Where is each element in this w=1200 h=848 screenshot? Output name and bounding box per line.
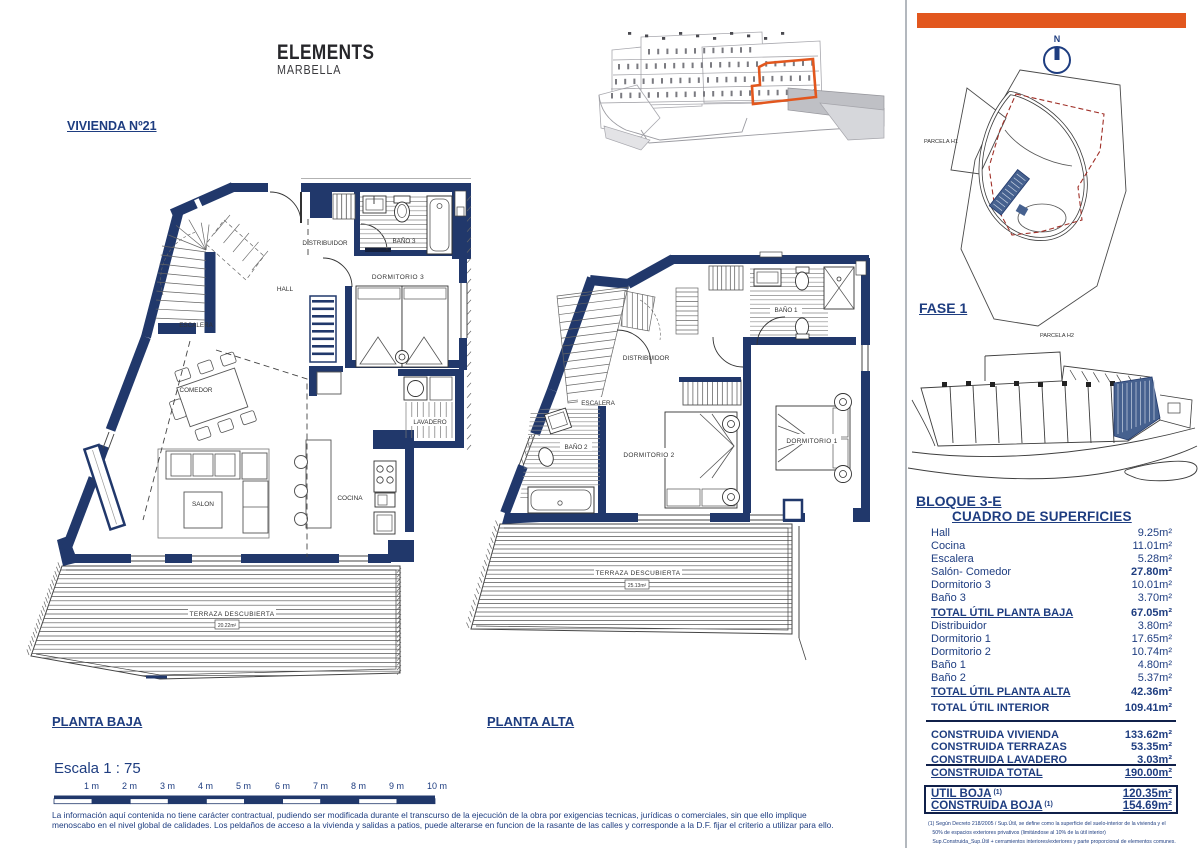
svg-text:BAÑO 1: BAÑO 1 [774,305,798,314]
svg-text:25.13m²: 25.13m² [628,583,647,589]
svg-text:BAÑO 3: BAÑO 3 [392,236,416,245]
svg-text:N: N [1054,34,1061,44]
svg-text:20.22m²: 20.22m² [218,623,237,629]
svg-text:TERRAZA DESCUBIERTA: TERRAZA DESCUBIERTA [595,570,680,577]
svg-text:ESCALERA: ESCALERA [581,400,615,407]
svg-text:ESCALERA: ESCALERA [179,322,213,329]
svg-text:BAÑO 2: BAÑO 2 [564,442,588,451]
svg-text:SALON: SALON [192,501,214,508]
svg-text:PARCELA H1: PARCELA H1 [924,139,958,145]
svg-text:DORMITORIO 1: DORMITORIO 1 [786,438,837,445]
svg-text:PARCELA H2: PARCELA H2 [1040,333,1074,339]
svg-text:LAVADERO: LAVADERO [413,419,446,426]
svg-text:TERRAZA DESCUBIERTA: TERRAZA DESCUBIERTA [189,611,274,618]
svg-text:DISTRIBUIDOR: DISTRIBUIDOR [302,240,348,247]
svg-text:COCINA: COCINA [337,495,363,502]
svg-text:COMEDOR: COMEDOR [180,387,213,394]
svg-text:DISTRIBUIDOR: DISTRIBUIDOR [623,355,670,362]
svg-text:HALL: HALL [277,286,294,293]
svg-text:DORMITORIO 3: DORMITORIO 3 [372,274,424,281]
svg-text:DORMITORIO 2: DORMITORIO 2 [623,452,674,459]
